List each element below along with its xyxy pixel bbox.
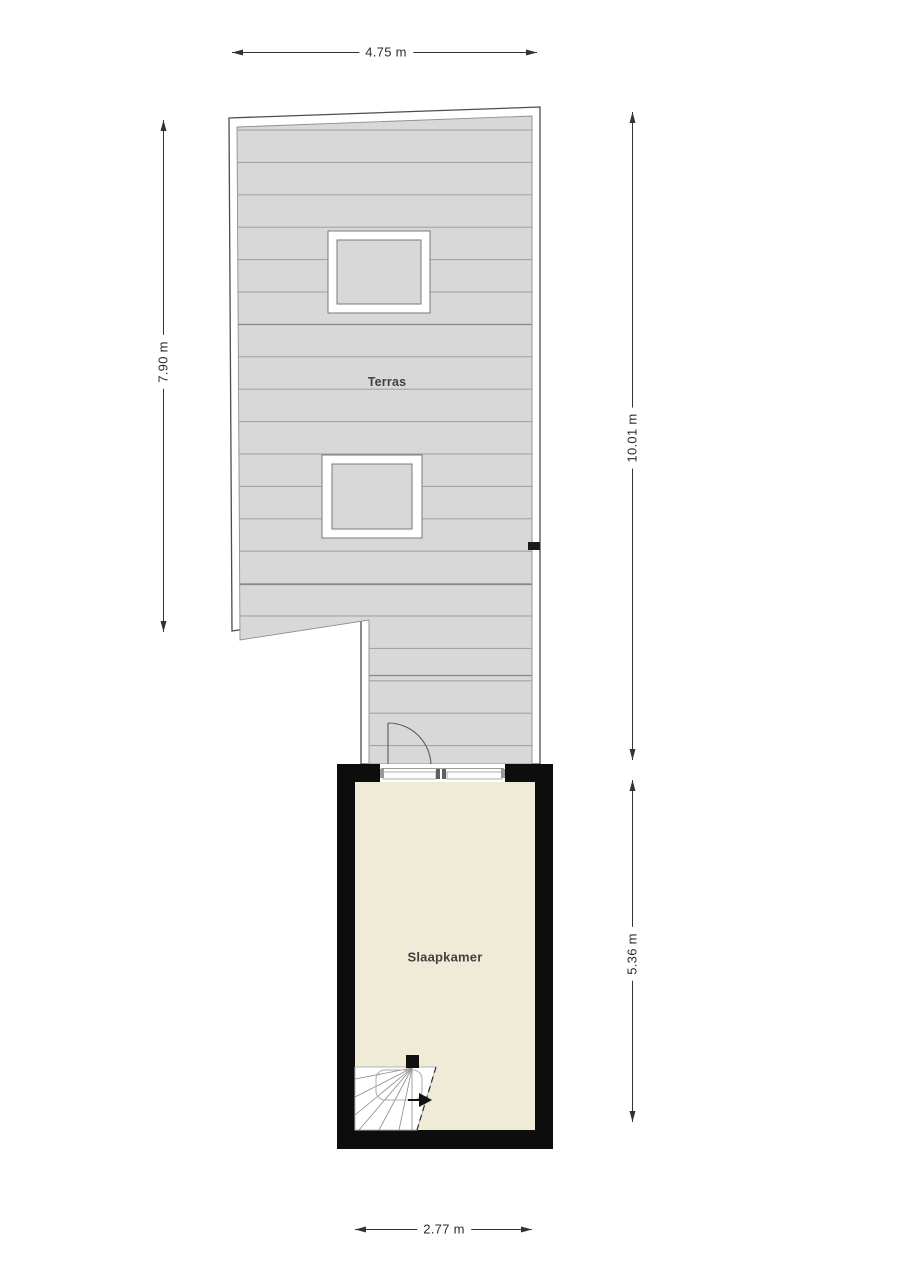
dimension-label-total-height: 10.01 m [624,407,641,468]
dimension-label-bedroom-height: 5.36 m [624,927,641,981]
dimension-label-bedroom-width: 2.77 m [417,1221,471,1238]
skylight-2 [322,455,422,538]
dimension-label-terrace-width: 4.75 m [359,44,413,61]
newel-post-marker [406,1055,419,1068]
terrace-door-frame [380,764,505,782]
floorplan-drawing [0,0,900,1263]
terrace-area [229,107,540,764]
wall-junction-marker [528,542,540,550]
room-label-slaapkamer: Slaapkamer [408,951,483,964]
skylight-1 [328,231,430,313]
room-label-terras: Terras [368,376,407,389]
dimension-label-terrace-height: 7.90 m [155,335,172,389]
terrace-deck-planks [237,116,532,764]
floorplan-canvas: 4.75 m 7.90 m 10.01 m 5.36 m 2.77 m Terr… [0,0,900,1263]
